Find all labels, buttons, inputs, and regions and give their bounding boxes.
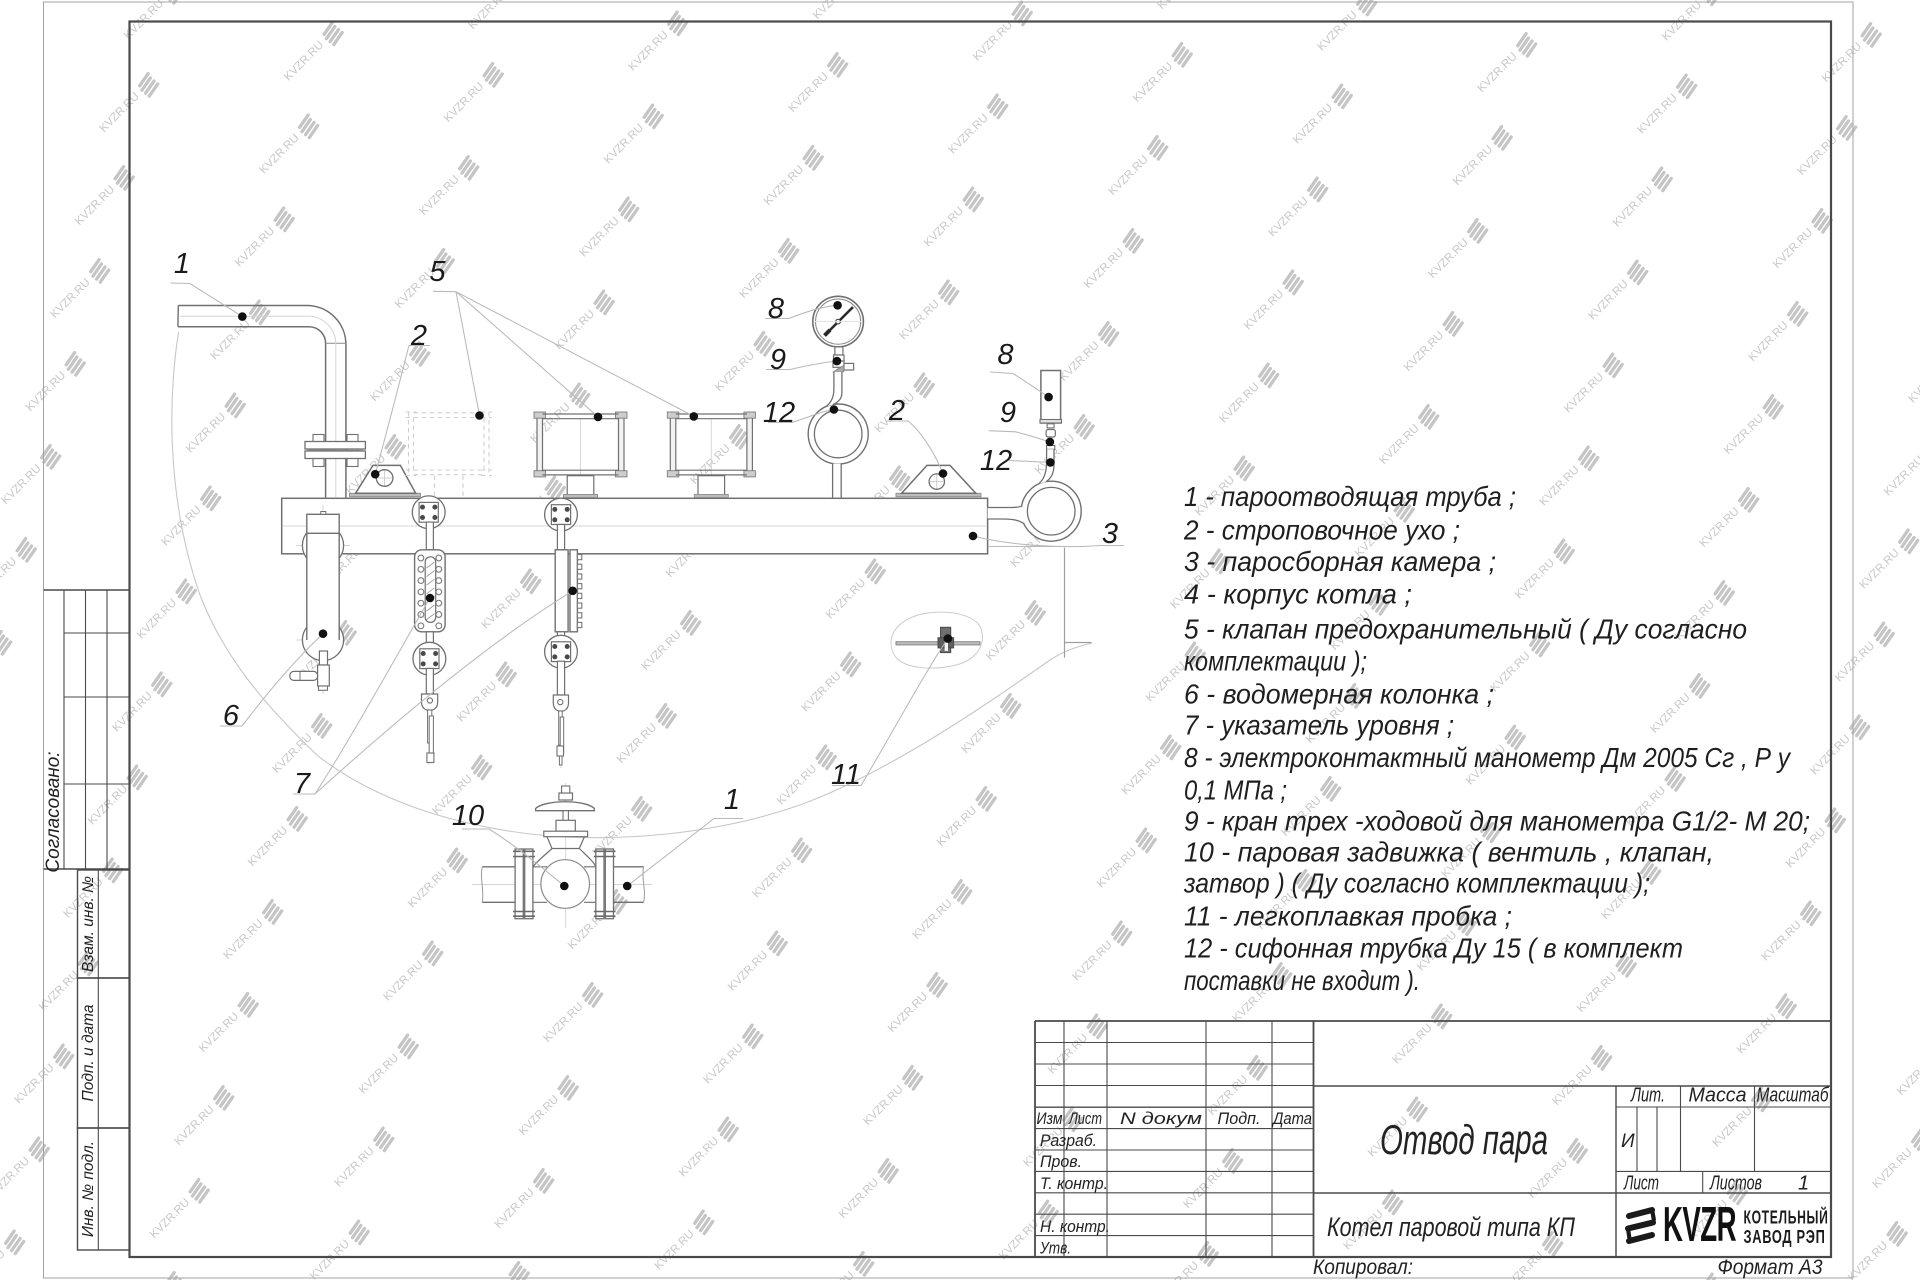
svg-text:Изм: Изм [1037,1109,1063,1128]
svg-text:0,1 МПа ;: 0,1 МПа ; [1184,775,1287,806]
svg-text:Подп.: Подп. [1218,1109,1261,1128]
svg-text:Утв.: Утв. [1039,1239,1071,1258]
svg-text:Лист: Лист [1623,1173,1659,1195]
svg-text:Дата: Дата [1271,1109,1312,1128]
svg-text:7: 7 [294,768,312,800]
svg-text:10: 10 [452,800,484,832]
svg-text:Лист: Лист [1068,1109,1102,1128]
svg-text:9 - кран трех -ходовой для ма: 9 - кран трех -ходовой для манометра G1/… [1184,806,1810,837]
svg-text:N докум: N докум [1120,1109,1202,1128]
svg-text:KVZR: KVZR [1663,1198,1736,1252]
svg-text:Подп. и дата: Подп. и дата [80,1004,97,1101]
svg-text:9: 9 [770,344,786,376]
svg-text:6 - водомерная колонка ;: 6 - водомерная колонка ; [1184,679,1494,710]
svg-text:комплектации );: комплектации ); [1184,646,1367,677]
svg-text:Инв. № подл.: Инв. № подл. [80,1141,97,1237]
svg-text:2: 2 [410,320,427,352]
svg-text:Разраб.: Разраб. [1040,1131,1097,1150]
svg-text:Пров.: Пров. [1040,1152,1082,1171]
svg-text:1: 1 [174,248,190,280]
svg-text:КОТЕЛЬНЫЙ: КОТЕЛЬНЫЙ [1744,1207,1829,1228]
svg-text:12: 12 [980,445,1012,477]
svg-text:12 - сифонная трубка Ду 15 (: 12 - сифонная трубка Ду 15 ( в комплект [1184,933,1683,964]
svg-text:3: 3 [1102,518,1118,550]
svg-text:8 - электроконтактный манометр: 8 - электроконтактный манометр Дм 2005 С… [1184,742,1792,773]
svg-text:Отвод пара: Отвод пара [1380,1116,1548,1163]
svg-text:11: 11 [831,759,861,791]
svg-text:1: 1 [1798,1173,1809,1195]
svg-text:поставки не входит ).: поставки не входит ). [1184,965,1420,996]
svg-text:Формат А3: Формат А3 [1718,1256,1823,1279]
svg-text:затвор ) ( Ду согласно комплек: затвор ) ( Ду согласно комплектации ); [1183,868,1650,899]
svg-text:Взам. инв. №: Взам. инв. № [80,876,97,972]
svg-text:4 - корпус котла ;: 4 - корпус котла ; [1184,579,1412,610]
svg-text:12: 12 [763,397,795,429]
svg-text:7 - указатель уровня ;: 7 - указатель уровня ; [1184,710,1454,741]
svg-text:10 - паровая задвижка ( вент: 10 - паровая задвижка ( вентиль , клапан… [1184,837,1714,868]
svg-text:Масштаб: Масштаб [1757,1085,1830,1107]
svg-text:5: 5 [429,256,446,288]
svg-text:2 - строповочное ухо ;: 2 - строповочное ухо ; [1183,515,1460,546]
svg-text:Масса: Масса [1689,1085,1747,1107]
svg-text:11 - легкоплавкая пробка ;: 11 - легкоплавкая пробка ; [1184,901,1512,932]
svg-text:8: 8 [997,339,1013,371]
svg-text:1: 1 [724,784,740,816]
svg-text:2: 2 [888,395,905,427]
svg-text:8: 8 [768,293,784,325]
svg-text:1 - пароотводящая труба ;: 1 - пароотводящая труба ; [1184,481,1516,512]
svg-text:Т. контр.: Т. контр. [1040,1174,1108,1193]
svg-text:Листов: Листов [1709,1173,1762,1195]
svg-text:Котел паровой типа КП: Котел паровой типа КП [1327,1212,1575,1242]
svg-text:Согласовано:: Согласовано: [43,751,64,872]
svg-text:Копировал:: Копировал: [1313,1256,1413,1279]
svg-text:5 - клапан предохранительный: 5 - клапан предохранительный ( Ду соглас… [1184,614,1747,645]
svg-text:Лит.: Лит. [1630,1085,1665,1107]
svg-text:6: 6 [223,700,240,732]
svg-text:ЗАВОД РЭП: ЗАВОД РЭП [1744,1226,1826,1247]
svg-text:9: 9 [1000,397,1016,429]
svg-text:Н. контр.: Н. контр. [1040,1217,1110,1236]
svg-text:И: И [1621,1131,1635,1152]
svg-text:3 - паросборная камера ;: 3 - паросборная камера ; [1184,546,1496,577]
